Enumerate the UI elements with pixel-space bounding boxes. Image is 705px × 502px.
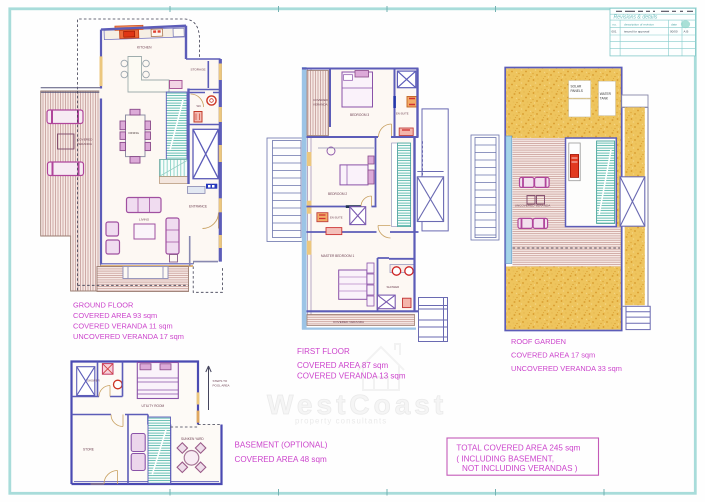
svg-text:description of revision: description of revision (624, 22, 654, 26)
svg-text:WC: WC (197, 104, 202, 108)
svg-text:COVERED VERANDA 11 sqm: COVERED VERANDA 11 sqm (73, 322, 173, 331)
svg-text:LIVING: LIVING (139, 218, 150, 222)
svg-text:COVERED VERANDA: COVERED VERANDA (333, 320, 365, 324)
svg-text:BEDROOM 3: BEDROOM 3 (350, 113, 369, 117)
svg-text:EN-SUITE: EN-SUITE (396, 112, 409, 116)
svg-text:( INCLUDING BASEMENT,: ( INCLUDING BASEMENT, (456, 454, 554, 463)
svg-text:COVERED AREA 87 sqm: COVERED AREA 87 sqm (297, 361, 388, 370)
svg-text:STORE: STORE (83, 448, 94, 452)
svg-text:UTILITY ROOM: UTILITY ROOM (142, 404, 165, 408)
svg-text:001: 001 (612, 29, 617, 33)
svg-text:UNCOVERED VERANDA: UNCOVERED VERANDA (515, 204, 552, 208)
svg-text:STORAGE: STORAGE (191, 68, 206, 72)
svg-text:FIRST FLOOR: FIRST FLOOR (297, 347, 350, 356)
svg-text:NOT INCLUDING VERANDAS ): NOT INCLUDING VERANDAS ) (462, 464, 578, 473)
svg-text:COVERED AREA 93 sqm: COVERED AREA 93 sqm (73, 311, 157, 320)
svg-text:date: date (671, 22, 677, 26)
svg-text:ROOF GARDEN: ROOF GARDEN (511, 337, 566, 346)
svg-text:Revisions & details: Revisions & details (614, 14, 658, 20)
svg-text:TANK: TANK (600, 97, 609, 101)
svg-text:TOTAL COVERED AREA 245 sqm: TOTAL COVERED AREA 245 sqm (456, 444, 580, 453)
svg-text:WATER: WATER (600, 92, 612, 96)
svg-text:ENTRANCE: ENTRANCE (189, 205, 208, 209)
svg-text:UNCOVERED VERANDA 17 sqm: UNCOVERED VERANDA 17 sqm (73, 332, 184, 341)
svg-text:BASEMENT (OPTIONAL): BASEMENT (OPTIONAL) (235, 440, 328, 449)
svg-text:VERANDA: VERANDA (77, 142, 93, 146)
svg-text:no.: no. (613, 22, 617, 26)
svg-text:SUNKEN YARD: SUNKEN YARD (181, 437, 204, 441)
svg-text:MASTER BEDROOM 1: MASTER BEDROOM 1 (321, 254, 355, 258)
svg-text:SHOWER: SHOWER (387, 285, 400, 289)
svg-text:issued for approval: issued for approval (624, 29, 650, 33)
svg-text:KITCHEN: KITCHEN (137, 46, 152, 50)
svg-text:A.B: A.B (684, 29, 689, 33)
svg-text:COVERED VERANDA 13 sqm: COVERED VERANDA 13 sqm (297, 371, 406, 380)
svg-text:PANELS: PANELS (571, 89, 583, 93)
svg-text:COVERED AREA 17 sqm: COVERED AREA 17 sqm (511, 351, 595, 360)
svg-text:WestCoast: WestCoast (267, 389, 447, 420)
svg-text:BEDROOM 2: BEDROOM 2 (328, 192, 347, 196)
svg-text:EN-SUITE: EN-SUITE (330, 216, 343, 220)
svg-text:COVERED AREA 48 sqm: COVERED AREA 48 sqm (235, 455, 327, 464)
svg-text:POOL AREA: POOL AREA (213, 384, 230, 388)
svg-text:STEPS TO: STEPS TO (213, 379, 228, 383)
svg-text:property consultants: property consultants (295, 417, 387, 426)
svg-text:SOLAR: SOLAR (571, 85, 583, 89)
svg-text:DINING: DINING (129, 131, 140, 135)
svg-text:00/00: 00/00 (670, 29, 678, 33)
svg-text:GROUND FLOOR: GROUND FLOOR (73, 301, 133, 310)
svg-text:UNCOVERED VERANDA 33 sqm: UNCOVERED VERANDA 33 sqm (511, 364, 622, 373)
svg-text:VERANDA: VERANDA (313, 102, 328, 106)
